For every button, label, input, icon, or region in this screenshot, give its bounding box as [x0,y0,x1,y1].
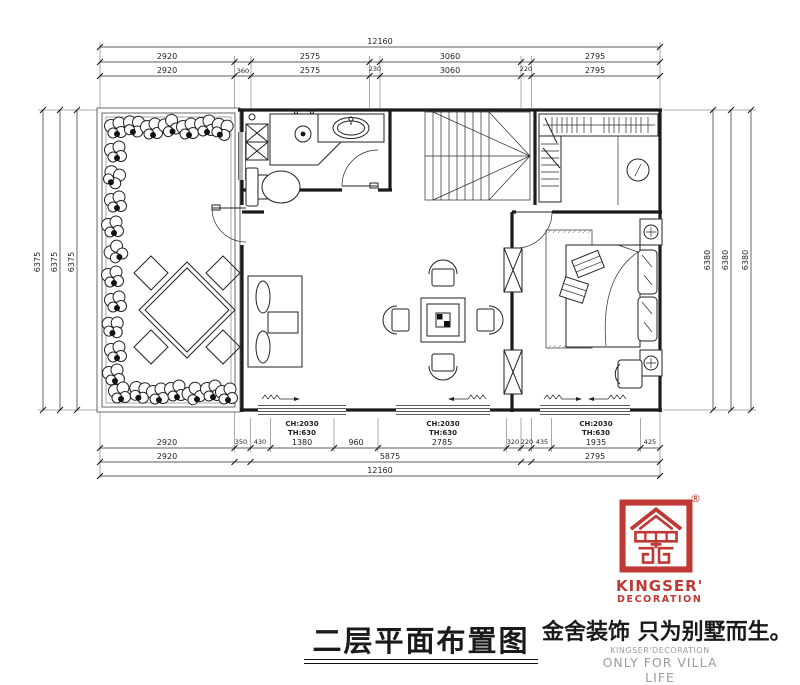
bed [559,245,657,347]
dining-table [383,260,503,380]
dimension-label: 2795 [585,66,605,75]
closet-stool [627,159,649,181]
dimension-label: 6380 [703,250,712,270]
logo-wordmark-sub: DECORATION [617,594,697,605]
slogan-chinese: 金舍装饰 只为别墅而生。 [542,614,792,646]
bathroom [246,110,384,206]
terrace-table-set [134,256,240,364]
terrace-door [212,205,246,242]
dimension-label: 2920 [157,452,177,461]
dimension-label: 6375 [50,252,59,272]
dimension-label: 2920 [157,66,177,75]
registered-trademark: ® [690,492,701,505]
terrace-plants [99,112,238,408]
dimension-label: 425 [644,438,656,446]
kingser-logo-icon [618,498,694,574]
dimension-label: 3060 [440,66,460,75]
column [504,350,522,394]
living-dining-room [248,248,522,394]
dimension-label: 2920 [157,52,177,61]
toilet [246,168,300,206]
dimension-label: 12160 [367,466,392,475]
logo-wordmark: KINGSER' [616,577,696,595]
floor-plan-page: 12160 2920 2575 3060 2795 2920 360 2575 … [0,0,800,685]
window-label: CH:2030 [579,420,612,428]
dimension-label: 1380 [292,438,312,447]
window-label: CH:2030 [426,420,459,428]
page-title: 二层平面布置图 [304,618,538,660]
window-label: TH:630 [582,429,610,437]
nightstand-bottom [640,350,662,376]
shaft-column [246,114,268,160]
dimension-label: 220 [521,438,533,446]
bedroom-chair [615,360,642,388]
window-label: TH:630 [288,429,316,437]
dimension-label: 2795 [585,452,605,461]
column [504,248,522,292]
dimension-label: 435 [536,438,548,446]
dimension-label: 2920 [157,438,177,447]
dimension-label: 220 [520,65,532,73]
dimension-label: 960 [348,438,363,447]
dimension-label: 1935 [586,438,606,447]
dimension-label: 2795 [585,52,605,61]
dimension-label: 230 [369,65,381,73]
bottom-windows [258,395,630,415]
vanity-sink [318,114,384,142]
dimension-label: 2575 [300,66,320,75]
title-underline [304,659,538,664]
dimension-label: 3060 [440,52,460,61]
nightstand-top [640,219,662,245]
dimension-label: 6375 [33,252,42,272]
dimension-label: 2575 [300,52,320,61]
dimension-label: 430 [254,438,266,446]
floor-plan-drawing: 12160 2920 2575 3060 2795 2920 360 2575 … [0,0,800,500]
dimension-label: 6380 [721,250,730,270]
window-label: CH:2030 [285,420,318,428]
slogan-english-brand: KINGSER'DECORATION [592,646,728,655]
dimension-label: 6375 [67,252,76,272]
dimensions-bottom: 2920 350 430 1380 960 2785 320 220 435 1… [97,412,663,479]
window-labels: CH:2030 TH:630 CH:2030 TH:630 CH:2030 TH… [285,420,612,437]
staircase [425,112,530,200]
dimension-label: 12160 [367,37,392,46]
dimension-label: 360 [237,67,249,75]
dimensions-left: 6375 6375 6375 [33,107,97,413]
sofa [248,276,302,367]
dimension-label: 2785 [432,438,452,447]
dimensions-top: 12160 2920 2575 3060 2795 2920 360 2575 … [97,37,663,108]
terrace-window [239,132,246,180]
bathroom-door [342,150,378,188]
dimension-label: 350 [235,438,247,446]
slogan-english-tagline: ONLY FOR VILLA LIFE [588,655,732,685]
dimensions-right: 6380 6380 6380 [663,107,756,413]
dimension-label: 6380 [741,250,750,270]
dimension-label: 320 [507,438,519,446]
walk-in-closet [539,114,658,205]
window-label: TH:630 [429,429,457,437]
bedroom [516,212,662,388]
terrace [97,108,240,412]
dimension-label: 5875 [380,452,400,461]
